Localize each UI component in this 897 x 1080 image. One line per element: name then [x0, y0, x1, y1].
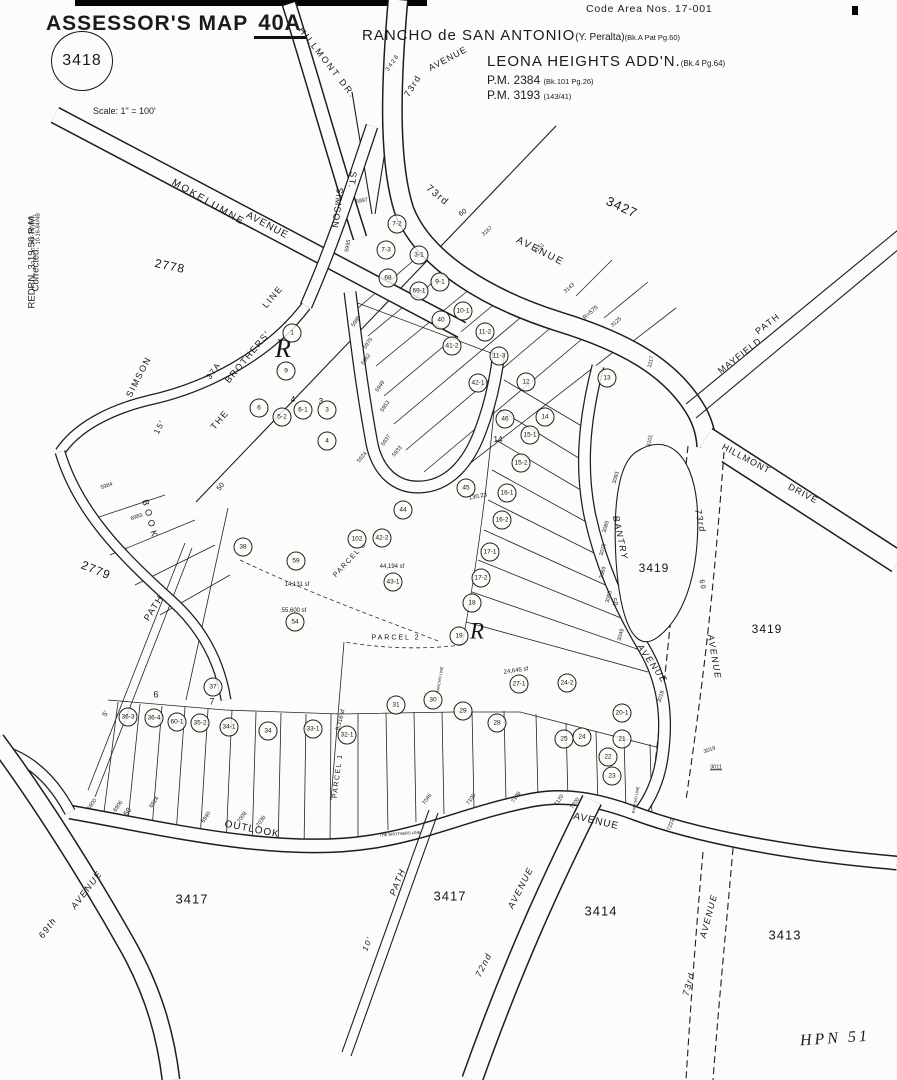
- map-annotation: R: [470, 620, 484, 643]
- scale-label: Scale: 1" = 100': [93, 106, 156, 116]
- parcel-map-ref-1: P.M. 2384 (Bk.101 Pg.26): [487, 73, 594, 87]
- parcel-number: 41-2: [443, 337, 462, 356]
- addition-title: LEONA HEIGHTS ADD'N.(Bk.4 Pg.64): [487, 53, 725, 70]
- parcel-number: 28: [488, 714, 507, 733]
- map-annotation: 14: [494, 436, 503, 444]
- parcel-number: 22: [599, 748, 618, 767]
- rancho-subtitle: (Y. Peralta): [575, 32, 624, 43]
- parcel-number: 42-1: [469, 374, 488, 393]
- parcel-number: 3-1: [410, 246, 429, 265]
- corrected-date-2: 10-16-84/NB: [36, 213, 42, 244]
- parcel-number: 24-2: [558, 674, 577, 693]
- address-label: 3011: [710, 765, 722, 771]
- map-linework: [0, 0, 897, 1080]
- corrected-note: Corrected: 5-2-78/W7810-16-84/NB: [30, 171, 43, 291]
- parcel-number: 17-2: [472, 569, 491, 588]
- parcel-number: 11-2: [476, 323, 495, 342]
- parcel-number: 31: [387, 696, 406, 715]
- parcel-number: 35-2: [191, 714, 210, 733]
- rancho-name: RANCHO de SAN ANTONIO: [362, 27, 575, 44]
- parcel-number: 16-1: [498, 484, 517, 503]
- parcel-number: 17-1: [481, 543, 500, 562]
- parcel-number: 37: [204, 678, 223, 697]
- parcel-number: 36-3: [119, 708, 138, 727]
- parcel-number: 15-1: [521, 426, 540, 445]
- parcel-number: 34-1: [220, 718, 239, 737]
- map-annotation: 44,194 sf: [380, 564, 405, 570]
- block-number-label: 3419: [639, 562, 670, 574]
- roads: [0, 0, 897, 1080]
- parcel-number: 13: [598, 369, 617, 388]
- parcel-number: 19: [450, 627, 469, 646]
- block-number-label: 3413: [769, 929, 802, 942]
- rancho-reference: (Bk.A Pat Pg.60): [625, 33, 680, 42]
- map-annotation: 7: [209, 698, 214, 707]
- parcel-number: 33-1: [304, 720, 323, 739]
- parcel-number: 25: [555, 730, 574, 749]
- parcel-number: 59: [287, 552, 306, 571]
- parcel-number: 18: [463, 594, 482, 613]
- parcel-number: 5-2: [273, 408, 292, 427]
- code-area-label: Code Area Nos. 17-001: [586, 3, 713, 15]
- assessor-map-page: HILLMONT DR.73rdAVENUE3428MOKELUMNEAVENU…: [0, 0, 897, 1080]
- parcel-number: 20-1: [613, 704, 632, 723]
- parcel-map-ref-2: P.M. 3193 (143/41): [487, 88, 571, 102]
- addition-reference: (Bk.4 Pg.64): [681, 59, 725, 68]
- street-label: PARCEL 2: [371, 635, 420, 642]
- addition-name: LEONA HEIGHTS ADD'N.: [487, 53, 681, 70]
- parcel-number: 29: [454, 702, 473, 721]
- parcel-number: 3: [318, 401, 337, 420]
- parcel-number: 9-1: [431, 273, 450, 292]
- block-number-label: 3414: [585, 905, 618, 918]
- street-label: ST.: [346, 171, 357, 189]
- parcel-number: 68: [379, 269, 398, 288]
- parcel-number: 69-1: [410, 282, 429, 301]
- parcel-number: 45: [457, 479, 476, 498]
- map-number: 40A: [254, 10, 305, 39]
- parcel-number: 44: [394, 501, 413, 520]
- parcel-number: 40: [432, 311, 451, 330]
- parcel-number: 21: [613, 730, 632, 749]
- parcel-number: 4: [318, 432, 337, 451]
- book-number: 3418: [62, 52, 102, 70]
- map-annotation: 4: [291, 396, 295, 404]
- parcel-number: 30: [424, 691, 443, 710]
- parcel-number: 1: [283, 324, 302, 343]
- map-annotation: 14,131 sf: [285, 582, 310, 588]
- parcel-number: 10-1: [454, 302, 473, 321]
- parcel-number: 14: [536, 408, 555, 427]
- parcel-number: 12: [517, 373, 536, 392]
- parcel-number: 36-4: [145, 709, 164, 728]
- parcel-number: 102: [348, 530, 367, 549]
- book-number-circle: 3418: [51, 31, 113, 91]
- parcel-number: 32-1: [338, 726, 357, 745]
- parcel-number: 9: [277, 362, 296, 381]
- parcel-number: 23: [603, 767, 622, 786]
- parcel-number: 46: [496, 410, 515, 429]
- parcel-number: 16-2: [493, 511, 512, 530]
- corrected-date-1: 5-2-78/W78: [30, 216, 36, 245]
- parcel-number: 6-1: [294, 401, 313, 420]
- parcel-number: 27-1: [510, 675, 529, 694]
- rancho-title: RANCHO de SAN ANTONIO(Y. Peralta)(Bk.A P…: [362, 27, 680, 44]
- map-annotation: 6: [153, 691, 158, 700]
- parcel-number: 6: [250, 399, 269, 418]
- parcel-number: 60-1: [168, 713, 187, 732]
- block-number-label: 3417: [176, 893, 209, 906]
- parcel-number: 43-1: [384, 573, 403, 592]
- parcel-number: 7-3: [377, 241, 396, 260]
- parcel-number: 7-2: [388, 215, 407, 234]
- parcel-number: 34: [259, 722, 278, 741]
- parcel-number: 38: [234, 538, 253, 557]
- parcel-number: 15-2: [512, 454, 531, 473]
- parcel-number: 11-3: [490, 347, 509, 366]
- block-number-label: 3419: [752, 623, 783, 635]
- block-number-label: 3417: [434, 890, 467, 903]
- parcel-number: 54: [286, 613, 305, 632]
- parcel-number: 42-2: [373, 529, 392, 548]
- parcel-number: 24: [573, 728, 592, 747]
